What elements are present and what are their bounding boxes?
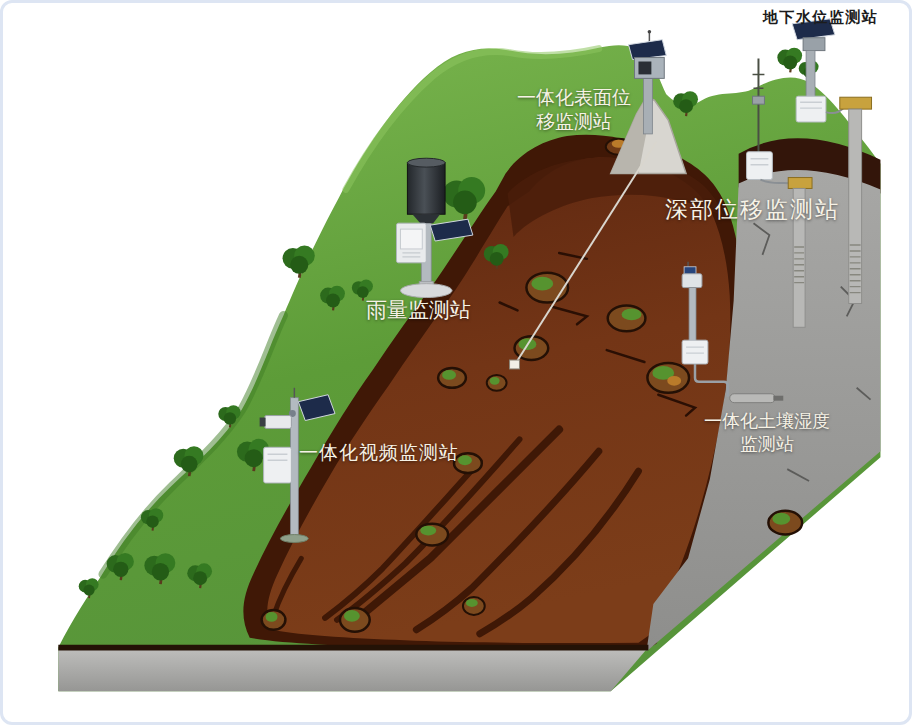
tree [777,48,802,73]
gauge-rim [407,158,445,167]
boulder [768,511,802,535]
mast-device [753,96,765,104]
wellhead-cap [788,178,812,189]
label-line: 监测站 [691,432,843,455]
boulder [526,273,568,303]
boulder [487,375,507,391]
station-pole [689,288,696,344]
label-surface-displacement-station: 一体化表面位 移监测站 [501,85,647,134]
landslide-monitoring-diagram: 一体化表面位 移监测站 地下水位监测站 深部位移监测站 雨量监测站 一体化视频监… [0,0,912,725]
sensor-head [803,38,825,51]
boulder [647,363,689,393]
label-line: 雨量监测站 [366,297,471,324]
scene-illustration [3,3,909,722]
base-rock-layer [58,650,646,692]
boulder [463,597,485,615]
label-line: 一体化表面位 [501,85,647,109]
label-groundwater-station: 地下水位监测站 [763,8,879,27]
sensor-face [638,62,651,75]
wellhead-cap [840,97,872,109]
label-video-station: 一体化视频监测站 [299,440,459,464]
equipment-box [747,152,773,180]
label-rainfall-station: 雨量监测站 [366,297,471,324]
label-soil-moisture-station: 一体化土壤湿度 监测站 [691,409,843,455]
probe-tip [773,396,783,401]
label-deep-displacement-station: 深部位移监测站 [665,195,840,224]
label-line: 地下水位监测站 [763,8,879,27]
base-plate [280,535,308,543]
boulder [262,610,286,630]
label-line: 深部位移监测站 [665,195,840,224]
base-plate [400,284,452,298]
boulder [416,524,448,546]
anchor-point [510,360,520,369]
camera-lens [260,418,266,427]
solar-panel-icon [629,40,667,60]
equipment-box [682,340,708,364]
station-pole [806,51,815,99]
tube-threads [794,247,804,283]
label-line: 一体化土壤湿度 [691,409,843,432]
equipment-box [264,447,292,483]
label-line: 一体化视频监测站 [299,440,459,464]
antenna-tip [648,30,652,34]
equipment-box [796,96,826,122]
boulder [340,608,370,632]
camera-icon [265,416,292,429]
label-line: 移监测站 [501,109,647,133]
rain-gauge-icon [407,163,445,215]
boulder [608,305,646,331]
box-door [400,229,422,249]
soil-moisture-probe [730,394,776,403]
boulder [438,368,466,388]
sensor-head [682,274,702,288]
